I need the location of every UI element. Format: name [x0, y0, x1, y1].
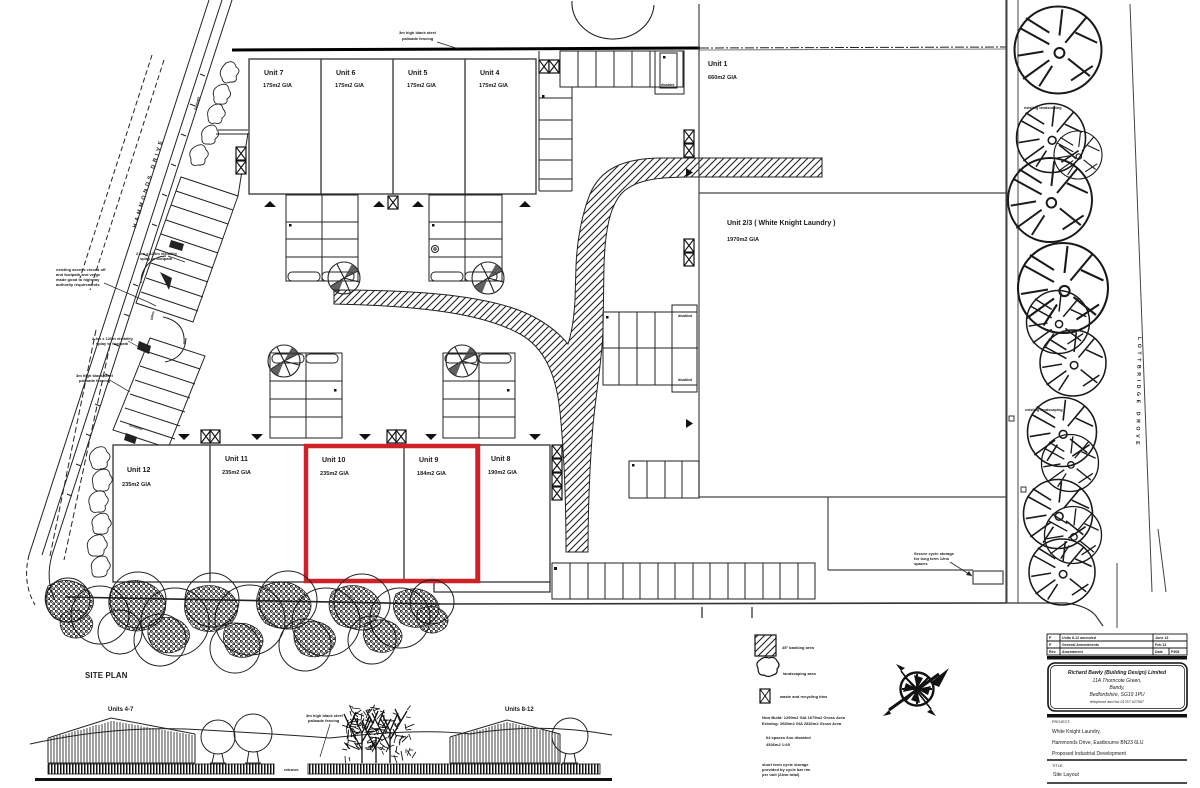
svg-text:TITLE:: TITLE: [1052, 764, 1063, 768]
svg-text:disabled: disabled [678, 314, 692, 318]
svg-text:Hammonds Drive, Eastbourne BN2: Hammonds Drive, Eastbourne BN23 6LU [1052, 740, 1144, 746]
svg-text:New Build: 1290m2 GIA 1679m: New Build: 1290m2 GIA 1679m2 Gross Area [762, 715, 846, 720]
svg-text:Site Layout: Site Layout [1053, 772, 1080, 778]
svg-text:Unit 7: Unit 7 [264, 70, 284, 77]
svg-text:175m2 GIA: 175m2 GIA [479, 83, 508, 89]
svg-text:1970m2 GIA: 1970m2 GIA [727, 237, 759, 243]
svg-text:palisade fencing: palisade fencing [308, 718, 340, 723]
svg-text:existing landscaping: existing landscaping [1024, 106, 1062, 110]
svg-text:Richard Bawly (Building Design: Richard Bawly (Building Design) Limited [1068, 670, 1167, 676]
svg-text:Unit 11: Unit 11 [225, 456, 248, 463]
svg-text:Unit 8: Unit 8 [491, 456, 511, 463]
svg-text:190m2 GIA: 190m2 GIA [488, 470, 517, 476]
svg-text:175m2 GIA: 175m2 GIA [335, 83, 364, 89]
svg-text:Unit 1: Unit 1 [708, 61, 728, 68]
svg-text:Proposed Industrial Developmen: Proposed Industrial Development [1052, 751, 1127, 757]
svg-text:palisade fencing: palisade fencing [402, 36, 434, 41]
svg-text:Amendment: Amendment [1062, 650, 1084, 654]
svg-text:splay to footpath: splay to footpath [96, 341, 129, 346]
svg-text:Feb 13: Feb 13 [1155, 643, 1166, 647]
svg-text:Unit 9: Unit 9 [419, 457, 439, 464]
svg-text:White Knight Laundry,: White Knight Laundry, [1052, 729, 1101, 735]
svg-text:4526m2 1:69: 4526m2 1:69 [766, 742, 791, 747]
svg-text:Bandy,: Bandy, [1109, 685, 1124, 691]
svg-text:authority requirements: authority requirements [56, 282, 100, 287]
svg-text:per unit (24no total): per unit (24no total) [762, 772, 800, 777]
svg-text:existing landscaping: existing landscaping [1025, 408, 1063, 412]
svg-text:Units 8-12 amended: Units 8-12 amended [1062, 636, 1096, 640]
svg-text:entrance: entrance [284, 768, 299, 772]
svg-text:June 13: June 13 [1155, 636, 1168, 640]
svg-text:235m2 GIA: 235m2 GIA [222, 470, 251, 476]
svg-text:splay to footpath: splay to footpath [140, 256, 173, 261]
svg-text:PROJECT:: PROJECT: [1052, 720, 1070, 724]
svg-text:disabled: disabled [678, 378, 692, 382]
svg-text:235m2 GIA: 235m2 GIA [320, 471, 349, 477]
svg-text:64 spaces 6no disabled: 64 spaces 6no disabled [766, 735, 811, 740]
svg-text:Existing: 2660m2 GIA 283: Existing: 2660m2 GIA 2832m2 Gross Area [762, 721, 842, 726]
svg-text:disabled: disabled [661, 83, 674, 87]
svg-text:Unit 5: Unit 5 [408, 70, 428, 77]
svg-text:Unit 2/3 ( White Knight Laundr: Unit 2/3 ( White Knight Laundry ) [727, 220, 836, 227]
svg-text:660m2 GIA: 660m2 GIA [708, 75, 737, 81]
svg-text:235m2 GIA: 235m2 GIA [122, 482, 151, 488]
svg-text:P308: P308 [1171, 650, 1179, 654]
svg-text:Unit 10: Unit 10 [322, 457, 345, 464]
svg-text:175m2 GIA: 175m2 GIA [263, 83, 292, 89]
svg-text:General Amendments: General Amendments [1062, 643, 1099, 647]
svg-text:landscaping area: landscaping area [783, 671, 816, 676]
svg-text:11A Thorncote Green,: 11A Thorncote Green, [1093, 678, 1142, 684]
svg-text:spaces: spaces [914, 561, 928, 566]
svg-text:Rev: Rev [1049, 650, 1056, 654]
svg-text:telephone and fax 01767 627567: telephone and fax 01767 627567 [1090, 700, 1145, 704]
svg-text:Units 8-12: Units 8-12 [505, 707, 534, 713]
svg-text:palisade fencing: palisade fencing [79, 378, 111, 383]
svg-text:SITE PLAN: SITE PLAN [85, 671, 128, 680]
svg-text:Unit 6: Unit 6 [336, 70, 356, 77]
svg-text:Unit 4: Unit 4 [480, 70, 500, 77]
svg-text:Units 4-7: Units 4-7 [108, 707, 134, 713]
svg-text:Unit 12: Unit 12 [127, 467, 150, 474]
svg-text:184m2 GIA: 184m2 GIA [417, 471, 446, 477]
svg-text:Bedfordshire, SG19 1PU: Bedfordshire, SG19 1PU [1089, 692, 1144, 698]
svg-text:3m high black steel: 3m high black steel [399, 30, 436, 35]
svg-text:45° banking area: 45° banking area [782, 645, 815, 650]
svg-text:175m2 GIA: 175m2 GIA [407, 83, 436, 89]
svg-text:Date: Date [1155, 650, 1163, 654]
svg-text:waste and recycling bins: waste and recycling bins [779, 694, 828, 699]
